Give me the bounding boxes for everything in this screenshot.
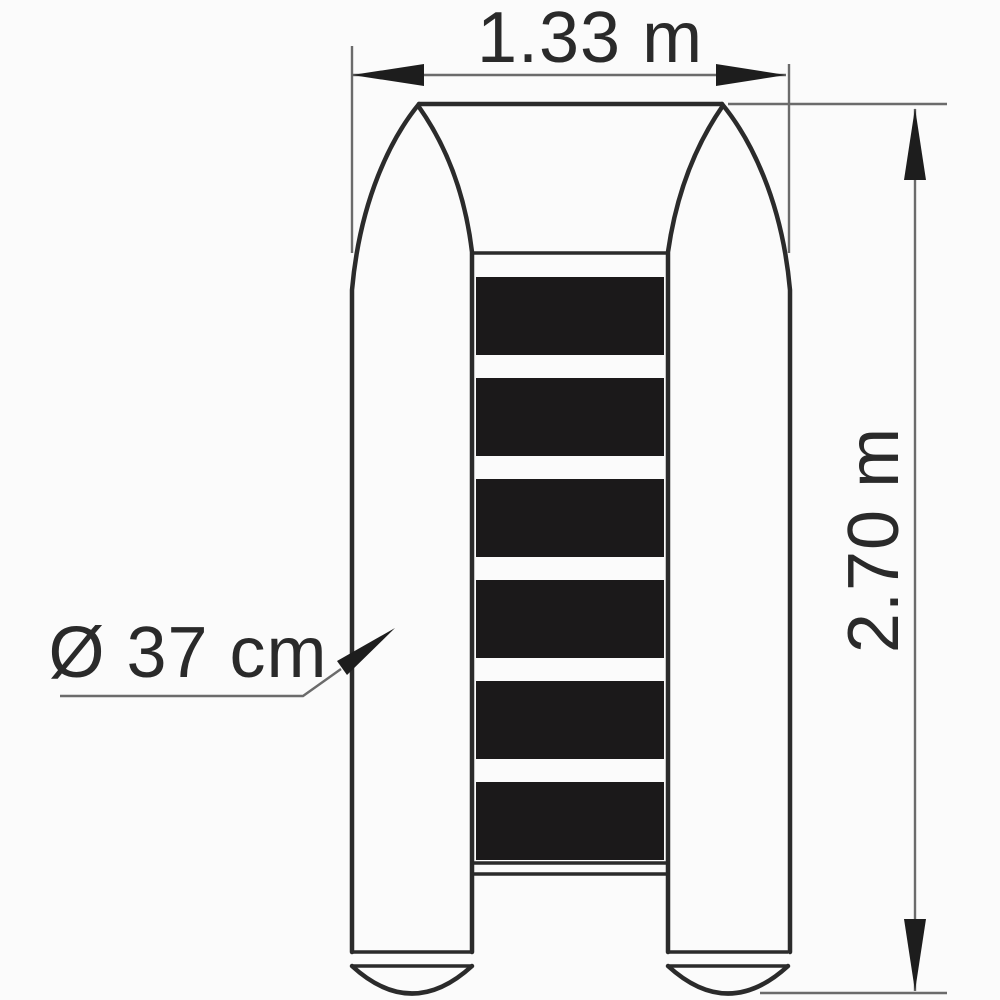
left-tube-outer-edge [352, 104, 419, 952]
left-tube-inner-edge [419, 107, 472, 952]
floor-bottom-edges [472, 863, 668, 874]
right-tube-outer-edge [722, 104, 790, 952]
tube-diameter-callout: Ø 37 cm [48, 613, 395, 696]
floor-slat [476, 277, 664, 355]
floor-slat [476, 782, 664, 860]
floor-slats [476, 277, 664, 860]
length-arrow-up-icon [904, 108, 926, 180]
length-dimension: 2.70 m [728, 104, 947, 993]
floor-slat [476, 479, 664, 557]
boat-top-view-drawing: 1.33 m 2.70 m Ø 37 cm [0, 0, 1000, 1000]
width-dimension: 1.33 m [352, 0, 789, 253]
width-dimension-label: 1.33 m [477, 0, 703, 78]
length-dimension-label: 2.70 m [834, 427, 914, 653]
right-tube-seam-lines [668, 952, 788, 966]
right-tube-end-cap [668, 966, 788, 994]
width-arrow-right-icon [716, 64, 786, 86]
left-tube-seam-lines [352, 952, 472, 966]
right-tube-inner-edge [668, 107, 722, 952]
technical-drawing-canvas: 1.33 m 2.70 m Ø 37 cm [0, 0, 1000, 1000]
left-tube-end-cap [352, 966, 472, 994]
floor-slat [476, 681, 664, 759]
length-arrow-down-icon [904, 919, 926, 991]
diameter-leader-arrow-icon [337, 628, 395, 675]
tube-diameter-label: Ø 37 cm [48, 613, 327, 693]
width-arrow-left-icon [352, 64, 424, 86]
floor-slat [476, 378, 664, 456]
floor-slat [476, 580, 664, 658]
